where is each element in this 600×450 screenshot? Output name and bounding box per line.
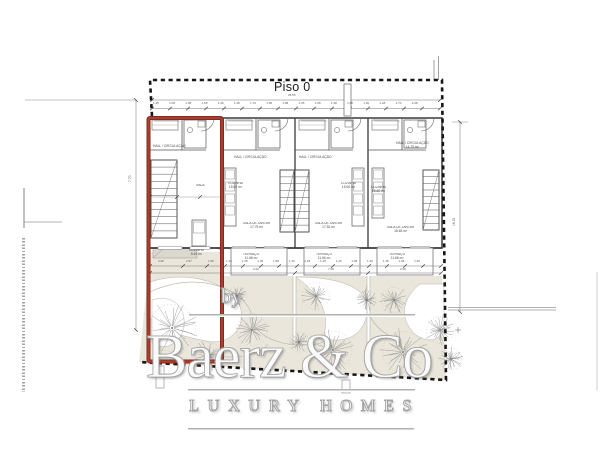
watermark-by: by [221,284,242,309]
room-label-cozinha-unit4: COZINHA15.60 m² [371,186,386,194]
floor-title: Piso 0 [274,80,311,94]
dim-right-height: 16.15 [453,218,456,226]
room-label-hall-unit4: HALL / CIRCULAÇÃO14.70 m² [396,142,429,150]
room-label-cozinha-unit2: COZINHA18.60 m² [228,182,243,190]
watermark-rule-bottom [188,428,414,430]
floor-plan-page: Piso 0 HALL / CIRCULAÇÃO SALA COZINHA8.4… [0,0,600,450]
dim-lower-span-1: 2.62 [253,268,259,271]
titleblock-microtext [22,238,25,392]
room-label-sala-jantar-unit3: SALA DE JANTAR17.52 m² [315,222,342,230]
dim-left-height: 7.70 [129,176,132,182]
room-label-cozinha-unit3: COZINHA15.60 m² [341,182,356,190]
dim-garden-2: 2.97 [186,260,192,263]
watermark-rule-top [189,314,415,316]
dim-lower-span-2: 7.08 [328,268,334,271]
dim-garden-3: 1.59 [208,260,214,263]
dim-top-segments: 1.35 1.08 1.38 1.58 1.36 1.48 1.70 1.38 … [153,102,418,105]
dim-terrace-segments: 1.18 1.48 1.30 1.98 1.40 1.18 1.48 1.30 … [226,260,420,263]
watermark-brand: Baerz & Co [146,322,432,393]
room-label-hall-unit2: HALL / CIRCULAÇÃO [234,156,267,160]
room-label-hall-unit3: HALL / CIRCULAÇÃO [299,156,332,160]
dim-lower-span-3: 3.08 [400,268,406,271]
dim-garden-1: 2.98 [158,260,164,263]
watermark-tagline: LUXURY HOMES [189,396,420,416]
watermark-rule-mid [188,389,415,391]
dim-overall-width: 25.55 [288,94,296,97]
room-label-hall-unit1: HALL / CIRCULAÇÃO [153,145,186,149]
room-label-sala-jantar-unit4: SALA DE JANTAR18.63 m² [387,226,414,234]
room-label-sala-jantar-unit2: SALA DE JANTAR17.75 m² [243,222,270,230]
room-label-cozinha-unit1: COZINHA8.40 m² [189,249,204,257]
room-label-sala-unit1: SALA [196,184,204,188]
